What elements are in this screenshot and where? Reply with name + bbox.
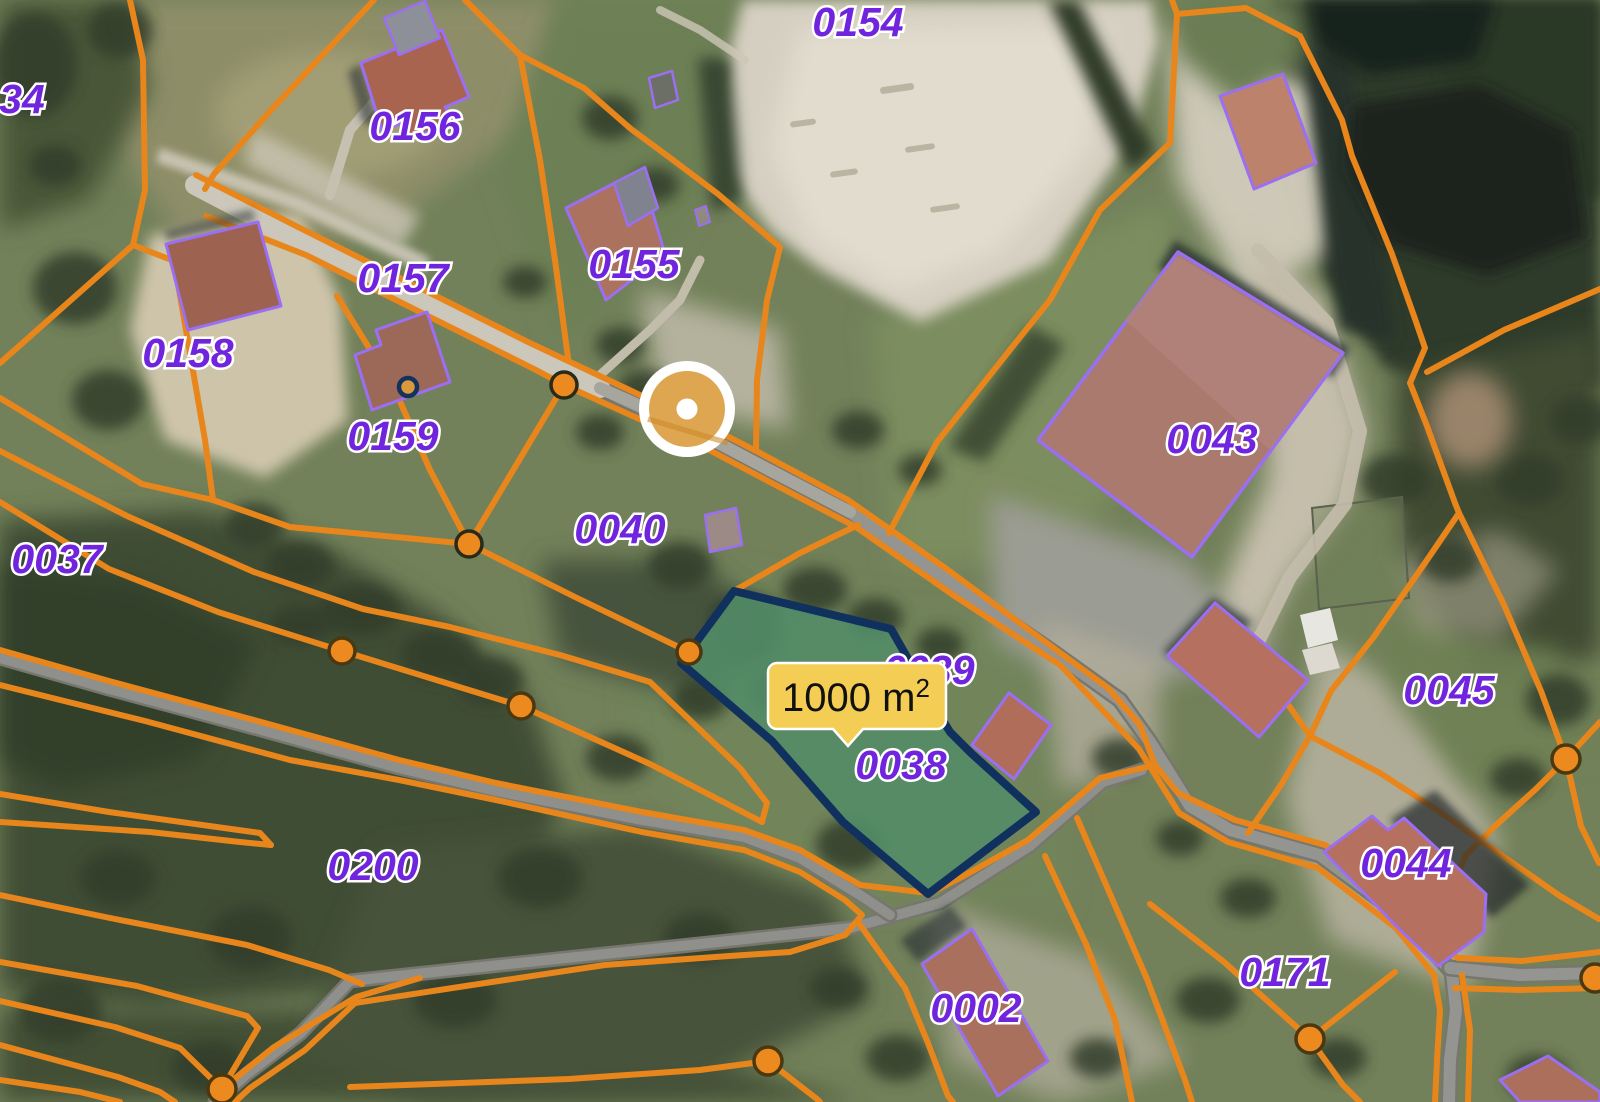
svg-text:0154: 0154 bbox=[812, 0, 903, 45]
svg-text:0171: 0171 bbox=[1239, 949, 1330, 995]
svg-text:0044: 0044 bbox=[1360, 840, 1451, 886]
svg-text:0045: 0045 bbox=[1403, 667, 1495, 713]
svg-text:0040: 0040 bbox=[574, 506, 665, 552]
svg-text:0156: 0156 bbox=[369, 103, 461, 149]
svg-text:0200: 0200 bbox=[327, 843, 418, 889]
svg-text:0157: 0157 bbox=[357, 255, 450, 301]
svg-text:0002: 0002 bbox=[930, 985, 1021, 1031]
svg-text:0158: 0158 bbox=[142, 330, 233, 376]
svg-text:34: 34 bbox=[0, 76, 45, 122]
svg-text:0038: 0038 bbox=[855, 742, 946, 788]
svg-text:0037: 0037 bbox=[11, 536, 104, 582]
svg-text:0043: 0043 bbox=[1166, 416, 1257, 462]
svg-text:0159: 0159 bbox=[347, 413, 438, 459]
svg-text:1000 m2: 1000 m2 bbox=[782, 673, 930, 720]
svg-text:0155: 0155 bbox=[588, 241, 680, 287]
